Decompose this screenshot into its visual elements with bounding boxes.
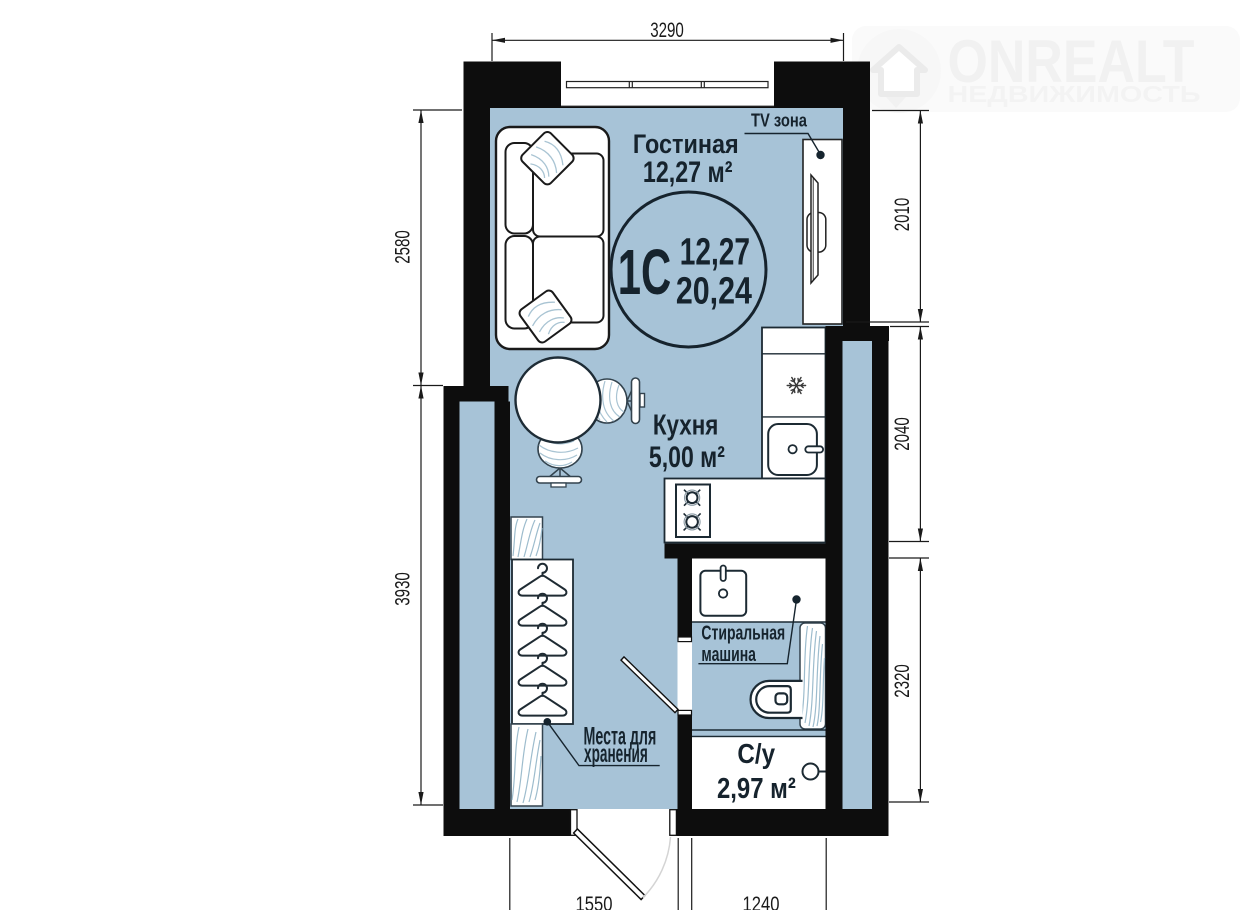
svg-text:1550: 1550 (576, 892, 613, 910)
svg-text:2040: 2040 (890, 417, 914, 451)
svg-text:5,00 м²: 5,00 м² (649, 441, 725, 474)
svg-text:20,24: 20,24 (676, 270, 752, 312)
svg-text:TV зона: TV зона (751, 111, 808, 131)
svg-text:2580: 2580 (391, 230, 415, 264)
svg-text:1240: 1240 (743, 892, 780, 910)
svg-text:Стиральная: Стиральная (701, 623, 785, 645)
svg-text:хранения: хранения (584, 740, 648, 768)
svg-text:машина: машина (701, 644, 756, 666)
svg-text:Гостиная: Гостиная (633, 129, 739, 159)
svg-text:С/у: С/у (737, 738, 775, 769)
svg-text:3930: 3930 (391, 572, 415, 606)
svg-text:1С: 1С (618, 236, 672, 308)
svg-text:Кухня: Кухня (653, 410, 719, 442)
svg-text:12,27 м²: 12,27 м² (643, 156, 733, 189)
svg-text:12,27: 12,27 (680, 232, 750, 274)
svg-text:НЕДВИЖИМОСТЬ: НЕДВИЖИМОСТЬ (948, 81, 1201, 107)
svg-text:2010: 2010 (890, 198, 914, 232)
svg-text:2,97 м²: 2,97 м² (717, 773, 796, 805)
svg-text:2320: 2320 (890, 664, 914, 698)
svg-text:3290: 3290 (650, 18, 684, 42)
